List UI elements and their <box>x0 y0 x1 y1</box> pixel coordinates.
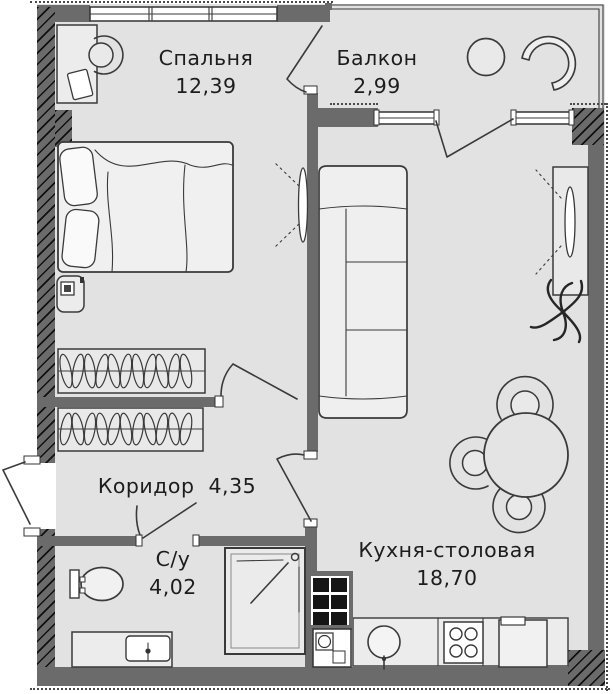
room-name: Спальня <box>121 44 291 72</box>
room-label-bathroom: С/у 4,02 <box>98 545 248 601</box>
room-name: Балкон <box>292 44 462 72</box>
balcony-window-right <box>511 110 574 125</box>
dining-chair-icon <box>450 437 488 489</box>
dining-set-icon <box>450 377 568 533</box>
kitchen-sink-icon <box>368 626 400 658</box>
pillow <box>59 146 99 207</box>
balcony-door-swing <box>436 119 513 157</box>
fridge-icon <box>499 617 547 667</box>
dining-table-icon <box>484 413 568 497</box>
tv-console-icon <box>536 167 588 295</box>
wardrobe-bedroom-icon <box>58 349 205 393</box>
kitchen-counter <box>353 617 568 669</box>
pillow <box>61 208 100 268</box>
room-label-balcony: Балкон 2,99 <box>292 44 462 100</box>
room-name: Кухня-столовая <box>347 536 547 564</box>
kitchen-tv-icon <box>565 187 575 257</box>
room-area: 12,39 <box>121 72 291 100</box>
vanity-sink-icon <box>72 632 172 667</box>
room-label-kitchen: Кухня-столовая 18,70 <box>347 536 547 592</box>
room-area: 4,35 <box>209 474 257 498</box>
sofa-icon <box>319 166 407 418</box>
wardrobe-corridor-icon <box>58 408 203 451</box>
room-area: 2,99 <box>292 72 462 100</box>
room-name: Коридор <box>98 474 195 498</box>
bedroom-tv-icon <box>274 162 308 248</box>
room-name: С/у <box>98 545 248 573</box>
room-area: 18,70 <box>347 564 547 592</box>
room-label-bedroom: Спальня 12,39 <box>121 44 291 100</box>
desk-icon <box>57 25 97 103</box>
balcony-corner-stub <box>325 3 332 10</box>
bed-icon <box>58 142 233 272</box>
room-label-corridor: Коридор 4,35 <box>67 472 287 500</box>
nightstand-icon <box>57 276 84 312</box>
balcony-window-left <box>374 110 439 125</box>
stove-icon <box>444 622 483 663</box>
washing-machine-icon <box>313 629 351 667</box>
bedroom-window <box>90 7 277 21</box>
floor-plan: Спальня 12,39 Балкон 2,99 Коридор 4,35 С… <box>0 0 613 694</box>
balcony-table-icon <box>468 39 505 76</box>
entrance-door-swing <box>3 462 30 524</box>
balcony-armchair-icon <box>522 37 575 90</box>
room-area: 4,02 <box>98 573 248 601</box>
bathroom-door-swing <box>136 503 196 538</box>
bedroom-door-swing <box>221 364 297 399</box>
